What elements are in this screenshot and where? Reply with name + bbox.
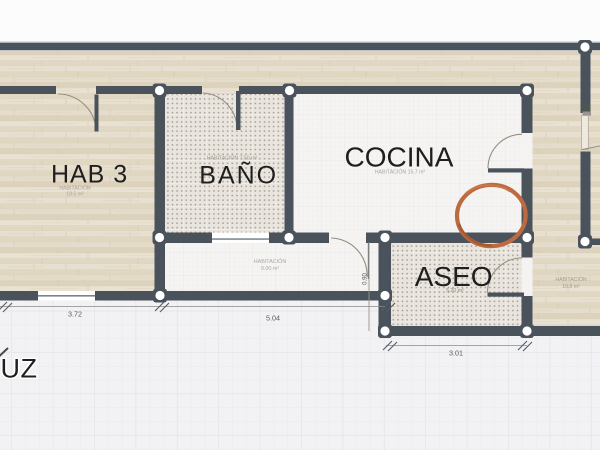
- svg-text:HABITACIÓN 7.50 m²: HABITACIÓN 7.50 m²: [207, 155, 258, 162]
- svg-text:9.00 m²: 9.00 m²: [261, 266, 279, 272]
- svg-text:COCINA: COCINA: [345, 142, 454, 173]
- svg-text:HABITACIÓN: HABITACIÓN: [254, 258, 287, 265]
- svg-text:HABITACIÓN: HABITACIÓN: [59, 185, 91, 192]
- svg-text:LUZ: LUZ: [0, 354, 38, 384]
- svg-text:5.20 m²: 5.20 m²: [446, 288, 464, 294]
- svg-text:5.04: 5.04: [266, 314, 280, 323]
- svg-text:HABITACIÓN: HABITACIÓN: [555, 276, 587, 283]
- svg-text:BAÑO: BAÑO: [199, 161, 278, 190]
- svg-text:3.01: 3.01: [449, 349, 463, 358]
- svg-text:18.5 m²: 18.5 m²: [66, 192, 84, 198]
- svg-text:HAB 3: HAB 3: [51, 161, 128, 189]
- svg-text:0.90: 0.90: [363, 273, 369, 285]
- svg-text:10.8 m²: 10.8 m²: [562, 284, 580, 290]
- svg-text:HABITACIÓN 15.7 m²: HABITACIÓN 15.7 m²: [375, 169, 426, 176]
- svg-text:3.72: 3.72: [68, 310, 82, 319]
